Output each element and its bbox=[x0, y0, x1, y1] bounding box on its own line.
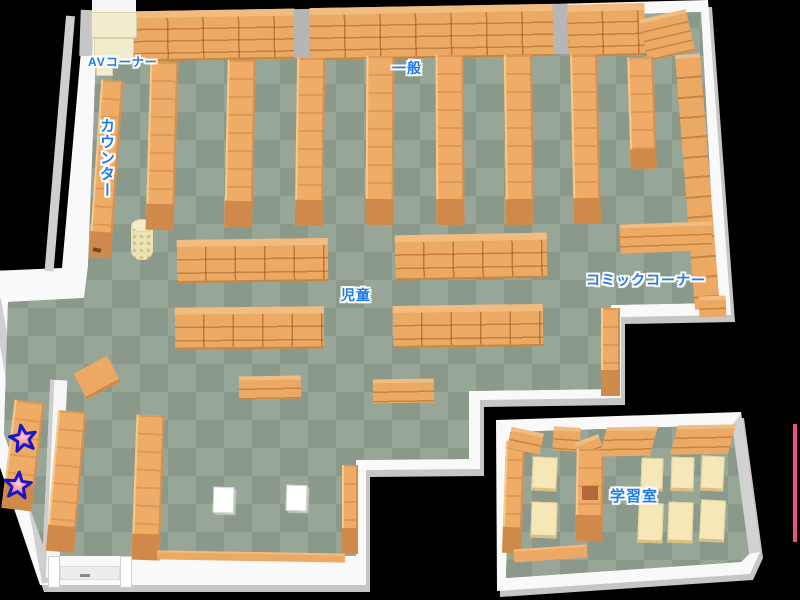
bookshelf-aisle-7 bbox=[570, 55, 601, 225]
bookshelf-aisle-1 bbox=[146, 62, 179, 231]
star-marker-icon[interactable] bbox=[6, 421, 41, 456]
bookshelf-top-wall-c bbox=[567, 3, 645, 57]
bookshelf-island-b1 bbox=[175, 306, 324, 349]
door-handle bbox=[80, 574, 90, 577]
study-table-r2c2 bbox=[667, 502, 693, 544]
av-cabinet-1 bbox=[91, 12, 137, 38]
bookshelf-aisle-4 bbox=[366, 56, 395, 225]
area-label-general: 一般 bbox=[392, 58, 422, 78]
bookshelf-aisle-2 bbox=[224, 60, 255, 228]
area-label-counter: カウンター bbox=[96, 118, 117, 218]
area-label-study-room: 学習室 bbox=[610, 485, 658, 506]
bookshelf-study-left-wall bbox=[502, 441, 525, 554]
study-table-r2c1 bbox=[637, 503, 663, 544]
bookshelf-island-a2 bbox=[395, 233, 548, 281]
white-box-2 bbox=[286, 485, 308, 512]
bookshelf-aisle-3 bbox=[295, 58, 325, 226]
white-box-1 bbox=[213, 487, 235, 514]
study-divider-gap bbox=[582, 486, 598, 500]
bookshelf-study-top-2 bbox=[670, 424, 736, 454]
study-table-r2c3 bbox=[699, 499, 726, 542]
bookshelf-island-b2 bbox=[393, 304, 544, 348]
map-canvas: AVコーナー カウンター 一般 児童 コミックコーナー 学習室 bbox=[0, 0, 800, 600]
low-shelf-bench-1 bbox=[239, 375, 301, 399]
bookshelf-lower-right-wall bbox=[342, 465, 358, 554]
door-post-left bbox=[48, 556, 60, 588]
study-table-r1c3 bbox=[700, 455, 725, 491]
bookshelf-comic-corner bbox=[620, 221, 713, 253]
door-opening bbox=[60, 566, 120, 580]
area-label-av-corner: AVコーナー bbox=[88, 53, 158, 70]
wall-pillar-left bbox=[294, 9, 311, 58]
bookshelf-top-wall-b bbox=[310, 4, 556, 60]
study-table-left-1 bbox=[531, 456, 558, 491]
low-shelf-bench-2 bbox=[373, 378, 434, 403]
study-table-left-2 bbox=[530, 502, 557, 539]
bookshelf-comic-wall bbox=[601, 308, 620, 396]
bookshelf-study-top-1 bbox=[599, 426, 658, 456]
star-marker-icon[interactable] bbox=[2, 469, 35, 502]
bookshelf-island-a1 bbox=[177, 238, 329, 283]
boundary-line bbox=[793, 424, 797, 542]
bookshelf-lower-left-2 bbox=[131, 415, 164, 561]
bookshelf-aisle-8 bbox=[627, 57, 657, 170]
bookshelf-aisle-6 bbox=[504, 55, 534, 225]
area-label-children: 児童 bbox=[341, 285, 371, 305]
bookshelf-step-corner bbox=[699, 296, 727, 318]
area-label-comic-corner: コミックコーナー bbox=[586, 270, 706, 290]
door-post-right bbox=[120, 556, 132, 588]
bookshelf-aisle-5 bbox=[436, 55, 465, 225]
wall-pillar-right bbox=[553, 4, 569, 54]
study-table-r1c2 bbox=[670, 457, 694, 492]
